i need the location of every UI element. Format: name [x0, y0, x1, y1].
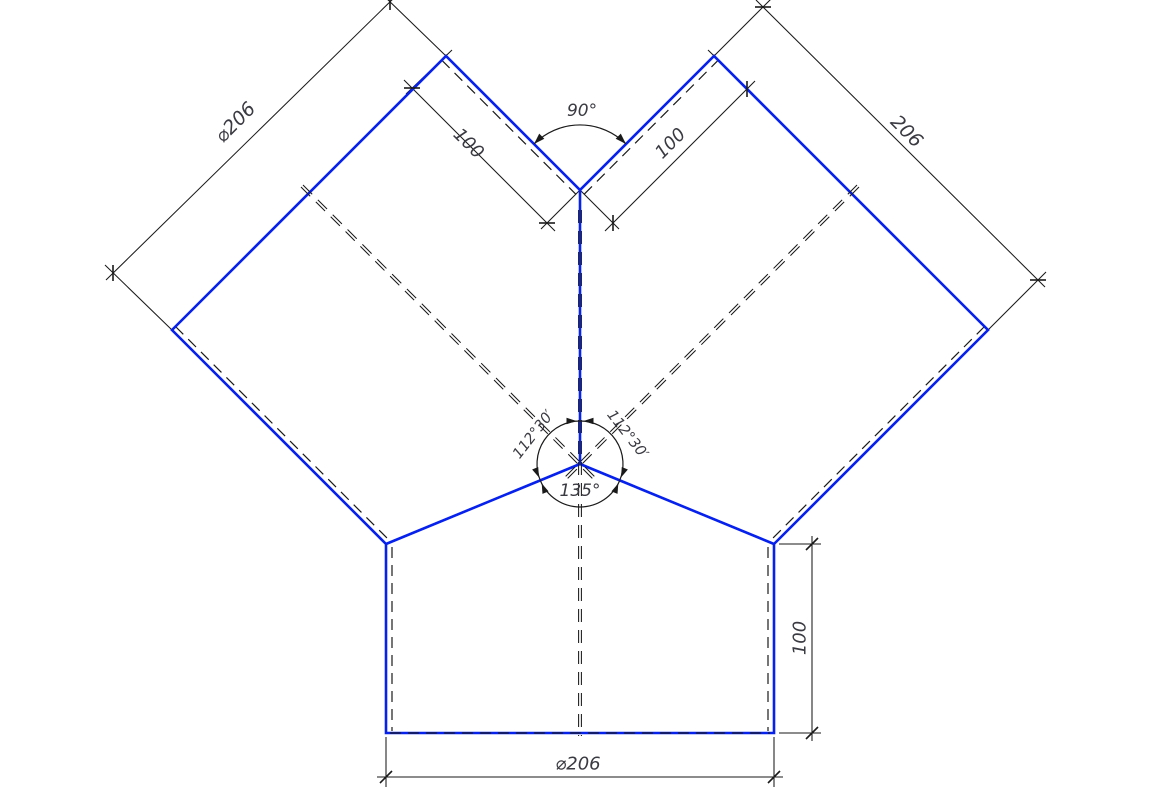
- label-left-branch-length: 100: [449, 124, 488, 163]
- arrowhead: [584, 418, 594, 425]
- label-bottom-diameter: ⌀206: [555, 753, 600, 774]
- hidden-edge: [584, 60, 718, 194]
- arc-90deg: [534, 125, 626, 144]
- arrowhead: [618, 467, 628, 479]
- label-bottom-junction-angle: 135°: [560, 481, 601, 501]
- centerline-left-branch: [301, 187, 595, 481]
- label-left-junction-angle: 112°30′: [510, 407, 558, 462]
- seam-line-right: [580, 464, 774, 544]
- seam-line-left: [386, 464, 580, 544]
- fitting-geometry: [172, 56, 988, 733]
- label-left-diameter: ⌀206: [211, 98, 260, 147]
- dimension-labels: ⌀206 206 100 100 90° 112°30′ 112°30′ 135…: [211, 98, 927, 774]
- label-top-angle: 90°: [567, 101, 597, 121]
- extension-line: [105, 265, 172, 330]
- label-right-junction-angle: 112°30′: [603, 407, 651, 462]
- hidden-edge: [771, 327, 985, 541]
- dim-line-right-branch: [605, 81, 755, 231]
- label-right-branch-length: 100: [651, 124, 690, 163]
- centerline-right-branch: [565, 187, 859, 481]
- hidden-edge: [176, 327, 390, 541]
- label-right-length: 206: [886, 111, 927, 152]
- technical-drawing: ⌀206 206 100 100 90° 112°30′ 112°30′ 135…: [0, 0, 1166, 802]
- arrowhead: [532, 467, 542, 479]
- arrowhead: [567, 418, 577, 425]
- extension-line: [714, 0, 771, 56]
- drawing-canvas: ⌀206 206 100 100 90° 112°30′ 112°30′ 135…: [0, 0, 1166, 802]
- dim-line-left-diameter: [106, 0, 397, 280]
- extension-line: [384, 0, 446, 56]
- label-outlet-height: 100: [789, 621, 810, 655]
